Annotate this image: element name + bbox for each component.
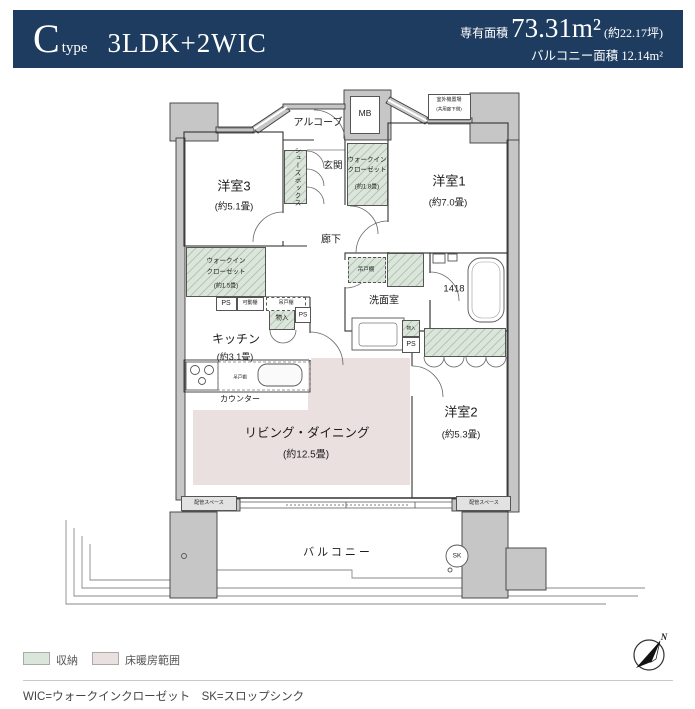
room-size-bedroom2: (約5.3畳) (442, 431, 481, 442)
room-label-balcony: バルコニー (303, 547, 373, 560)
outdoor-unit-line2: (共用廊下側) (436, 106, 462, 111)
room-label-alcove: アルコーブ (293, 117, 342, 129)
room-size-living: (約12.5畳) (283, 449, 329, 461)
room-label-living: リビング・ダイニング (244, 426, 369, 440)
stove (186, 362, 218, 390)
north-label: N (661, 632, 668, 642)
hanging-cupboard-counter-label: 吊戸棚 (233, 374, 247, 379)
hanging-cupboard-washroom-label: 吊戸棚 (358, 267, 375, 273)
room-label-entrance: 玄関 (323, 162, 342, 173)
room-label-hallway: 廊下 (321, 234, 341, 246)
pipe-space-label-1: PS (221, 300, 230, 308)
room-label-bedroom1: 洋室1 (432, 175, 465, 190)
bathtub (468, 258, 504, 322)
wic-entrance-box (347, 143, 388, 206)
wic-kitchen-size: (約1.5畳) (214, 284, 238, 291)
footer-divider (23, 680, 673, 681)
storage-bath-label: 物入 (407, 325, 416, 330)
legend-label-storage: 収納 (56, 652, 78, 668)
room-size-kitchen: (約3.1畳) (217, 352, 254, 362)
floorplan-drawing (0, 0, 695, 709)
wic-entrance-line1: ウォークイン (348, 156, 387, 163)
outdoor-unit-line1: 室外機置場 (436, 98, 461, 104)
room-size-bedroom3: (約5.1畳) (215, 203, 254, 214)
slab-outline (66, 520, 645, 604)
wic-entrance-line2: クローゼット (348, 166, 387, 173)
linen-storage-box (387, 253, 424, 287)
legend-swatch-floor-heating (92, 652, 119, 665)
pipe-area-right-label: 配管スペース (469, 501, 498, 507)
legend-label-floor-heating: 床暖房範囲 (125, 652, 180, 668)
meter-box-label: MB (359, 109, 372, 119)
pipe-space-label-3: PS (406, 341, 415, 349)
compass (634, 640, 664, 670)
counter-label: カウンター (220, 394, 260, 403)
room-label-bedroom3: 洋室3 (217, 180, 250, 195)
pipe-area-left-label: 配管スペース (194, 501, 223, 507)
room-size-bedroom1: (約7.0畳) (429, 199, 468, 210)
floorplan-page: C type 3LDK+2WIC 専有面積 73.31m² (約22.17坪) … (0, 0, 695, 709)
storage-kitchen-label: 物入 (276, 314, 289, 321)
hanging-cupboard-kitchen-label: 吊戸棚 (278, 301, 293, 307)
closet-bedroom2-box (424, 328, 506, 357)
bath-size-label: 1418 (443, 285, 464, 296)
footer-note: WIC=ウォークインクローゼット SK=スロップシンク (23, 688, 304, 704)
movable-shelf-label: 可動棚 (242, 301, 257, 307)
legend-swatch-storage (23, 652, 50, 665)
room-label-washroom: 洗面室 (369, 295, 399, 307)
wic-kitchen-line1: ウォークイン (207, 257, 246, 264)
pipe-space-label-2: PS (299, 311, 308, 318)
sink (258, 364, 302, 386)
shoe-box-label: シューズボックス (291, 147, 301, 207)
room-label-kitchen: キッチン (212, 333, 260, 347)
room-label-bedroom2: 洋室2 (444, 406, 477, 421)
wic-entrance-size: (約1.8畳) (355, 185, 379, 192)
wic-kitchen-line2: クローゼット (207, 268, 246, 275)
slop-sink-label: SK (453, 552, 462, 559)
